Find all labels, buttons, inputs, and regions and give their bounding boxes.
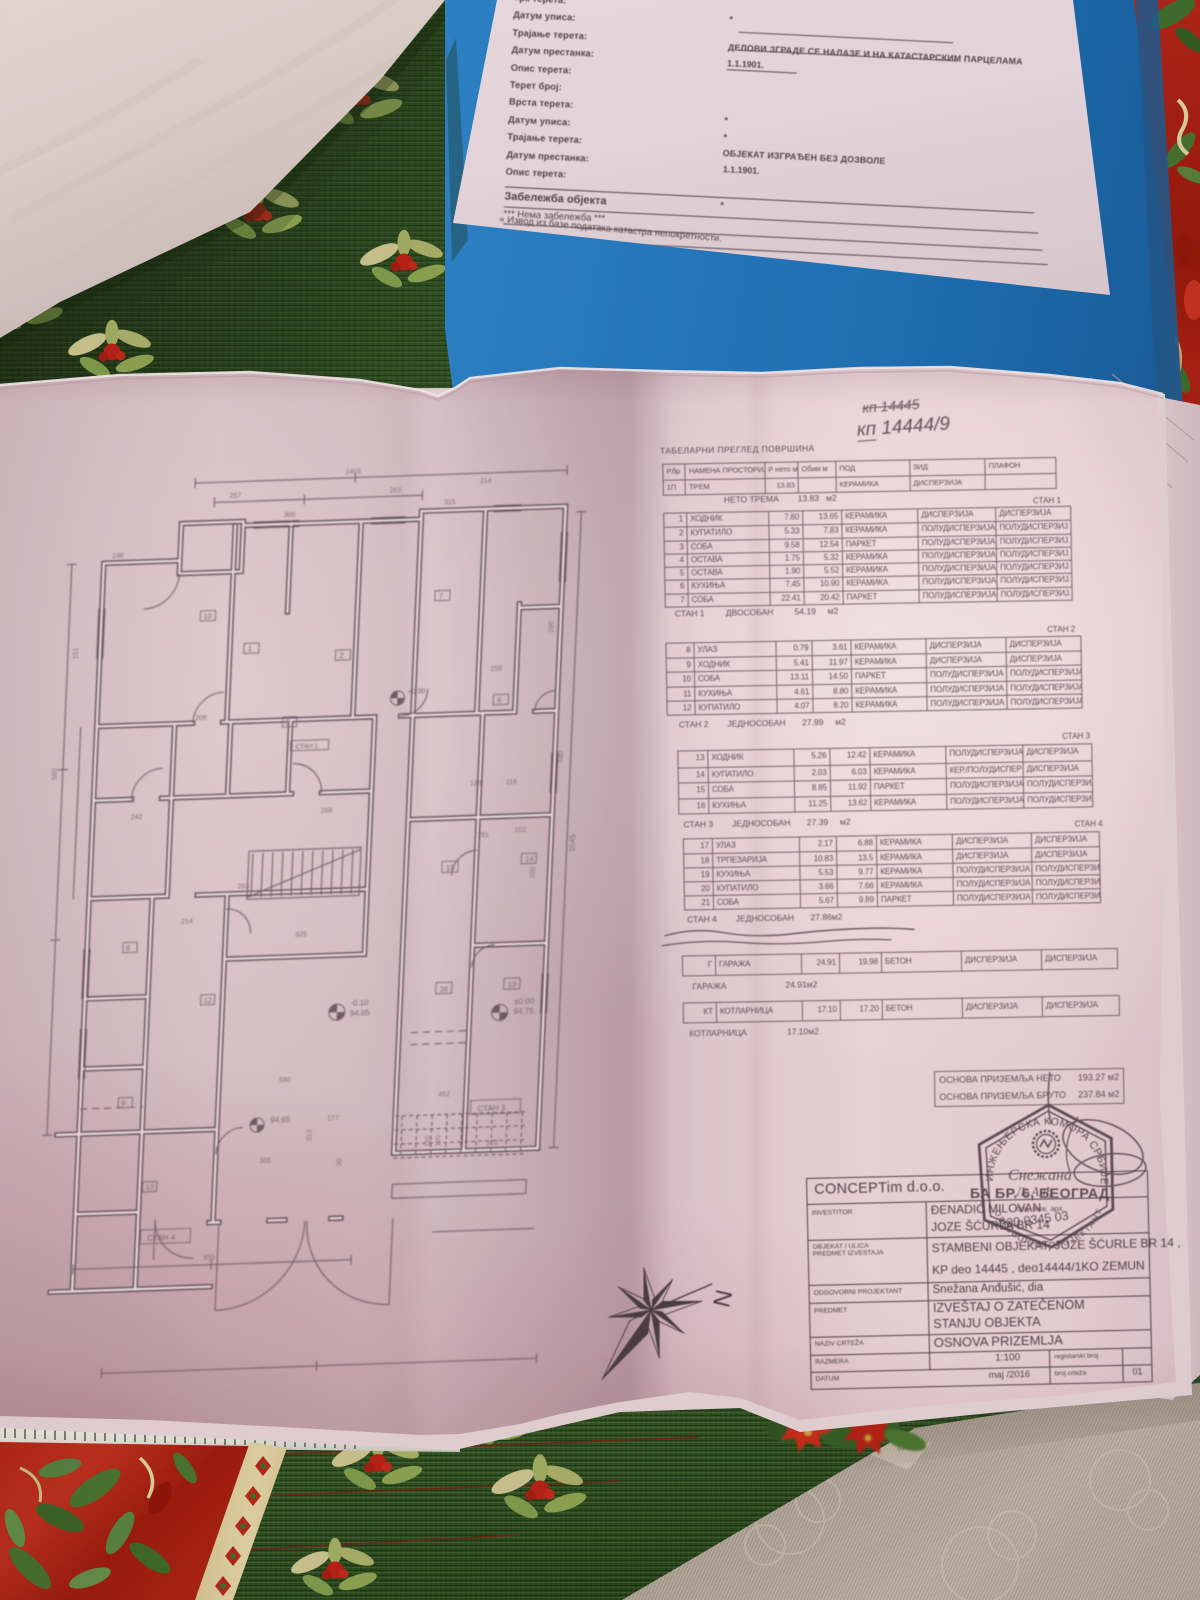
svg-text:-0.10: -0.10	[350, 998, 369, 1008]
svg-text:325: 325	[295, 931, 307, 938]
svg-text:БА БР. 6, БЕОГРАД: БА БР. 6, БЕОГРАД	[970, 1185, 1110, 1201]
svg-text:313: 313	[306, 1129, 314, 1141]
svg-text:2: 2	[339, 651, 344, 660]
svg-text:12: 12	[203, 996, 212, 1005]
svg-text:1: 1	[248, 644, 253, 653]
svg-text:1645: 1645	[568, 833, 578, 852]
svg-text:580: 580	[557, 750, 565, 762]
svg-text:268: 268	[321, 807, 333, 814]
svg-text:196: 196	[112, 553, 124, 560]
svg-text:290: 290	[548, 621, 556, 633]
svg-text:151: 151	[73, 647, 81, 659]
svg-text:263: 263	[389, 487, 401, 494]
svg-text:N: N	[708, 1287, 737, 1309]
svg-text:300 0345 03: 300 0345 03	[999, 1209, 1070, 1231]
svg-text:560: 560	[51, 768, 59, 780]
svg-text:855: 855	[203, 1254, 215, 1261]
svg-text:177: 177	[327, 1115, 339, 1122]
svg-text:9: 9	[121, 1099, 126, 1108]
svg-text:15: 15	[446, 863, 455, 872]
svg-text:120: 120	[425, 1135, 433, 1147]
svg-text:Снежана: Снежана	[1008, 1167, 1072, 1184]
svg-text:10: 10	[203, 612, 212, 621]
svg-text:3: 3	[285, 718, 290, 727]
svg-text:315: 315	[444, 499, 456, 506]
svg-text:128: 128	[470, 780, 482, 787]
svg-text:94,75: 94,75	[513, 1006, 534, 1016]
svg-text:120: 120	[435, 1135, 443, 1147]
svg-text:281: 281	[477, 832, 489, 839]
svg-text:1403: 1403	[345, 468, 361, 476]
svg-text:7: 7	[439, 591, 444, 600]
svg-text:8: 8	[126, 943, 131, 952]
svg-text:257: 257	[229, 493, 241, 500]
svg-text:214: 214	[181, 918, 193, 925]
svg-text:214: 214	[480, 478, 492, 485]
svg-text:±0.00: ±0.00	[514, 996, 535, 1006]
svg-text:14: 14	[525, 854, 534, 863]
svg-text:30: 30	[336, 1158, 343, 1166]
svg-text:17: 17	[145, 1183, 154, 1192]
svg-text:200: 200	[529, 866, 537, 878]
svg-text:590: 590	[279, 1077, 291, 1084]
svg-text:6: 6	[497, 695, 502, 704]
svg-text:СТАН 4: СТАН 4	[147, 1233, 176, 1243]
svg-text:118: 118	[506, 779, 518, 786]
svg-text:16: 16	[440, 984, 449, 993]
svg-text:208: 208	[195, 715, 207, 722]
svg-text:13: 13	[508, 980, 517, 989]
svg-text:+0.00: +0.00	[408, 688, 426, 696]
svg-text:242: 242	[131, 814, 143, 821]
svg-text:СТАН 3: СТАН 3	[477, 1103, 506, 1113]
svg-text:102: 102	[514, 827, 526, 834]
svg-text:305: 305	[259, 1157, 271, 1164]
svg-text:452: 452	[438, 1091, 450, 1098]
svg-text:СТАН 1: СТАН 1	[295, 743, 318, 751]
svg-text:203: 203	[237, 883, 249, 890]
svg-text:94,65: 94,65	[350, 1008, 371, 1018]
svg-text:103: 103	[486, 1140, 498, 1147]
svg-text:258: 258	[490, 665, 502, 672]
svg-text:300: 300	[284, 512, 296, 519]
svg-text:94,65: 94,65	[270, 1115, 291, 1125]
